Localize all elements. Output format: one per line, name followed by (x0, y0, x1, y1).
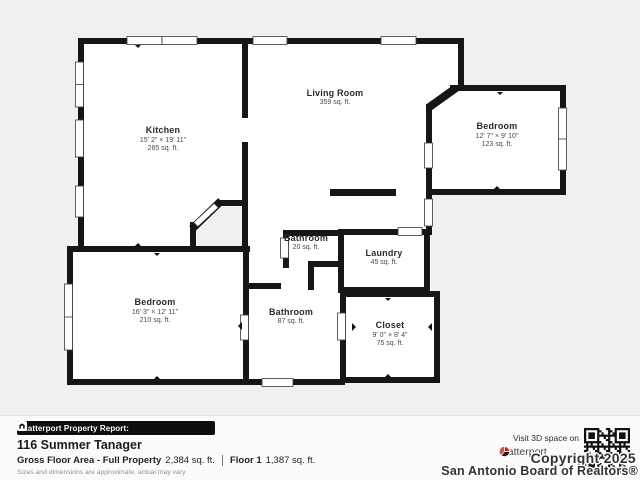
floor-label: Floor 1 (230, 455, 262, 466)
report-header-bar: Matterport Property Report: (17, 421, 215, 435)
disclaimer-text: Sizes and dimensions are approximate, ac… (17, 469, 186, 476)
room-label-bathroom-main: Bathroom 87 sq. ft. (269, 307, 313, 325)
room-label-bathroom-small: Bathroom 20 sq. ft. (284, 233, 328, 251)
report-label: Matterport Property Report: (21, 424, 129, 433)
room-label-closet: Closet 9' 0" × 8' 4" 75 sq. ft. (372, 320, 407, 347)
property-report-page: Kitchen 15' 2" × 19' 11" 285 sq. ft. Liv… (0, 0, 640, 480)
matterport-pinwheel-icon (499, 446, 510, 457)
floor-value: 1,387 sq. ft. (266, 455, 316, 466)
visit-3d-label: Visit 3D space on (513, 433, 579, 443)
copyright-owner: San Antonio Board of Realtors® (441, 464, 638, 478)
gross-floor-area-label: Gross Floor Area - Full Property (17, 455, 161, 466)
floor-area-info: Gross Floor Area - Full Property 2,384 s… (17, 455, 315, 466)
divider (222, 455, 223, 466)
room-label-kitchen: Kitchen 15' 2" × 19' 11" 285 sq. ft. (140, 125, 186, 152)
room-label-bedroom-lower: Bedroom 16' 3" × 12' 11" 210 sq. ft. (132, 297, 178, 324)
room-label-bedroom-upper: Bedroom 12' 7" × 9' 10" 123 sq. ft. (476, 121, 519, 148)
gross-floor-area-value: 2,384 sq. ft. (165, 455, 215, 466)
room-label-laundry: Laundry 45 sq. ft. (366, 248, 403, 266)
property-address: 116 Summer Tanager (17, 438, 142, 452)
matterport-house-icon (17, 421, 27, 431)
room-label-living-room: Living Room 359 sq. ft. (307, 88, 364, 106)
fireplace (330, 189, 396, 196)
